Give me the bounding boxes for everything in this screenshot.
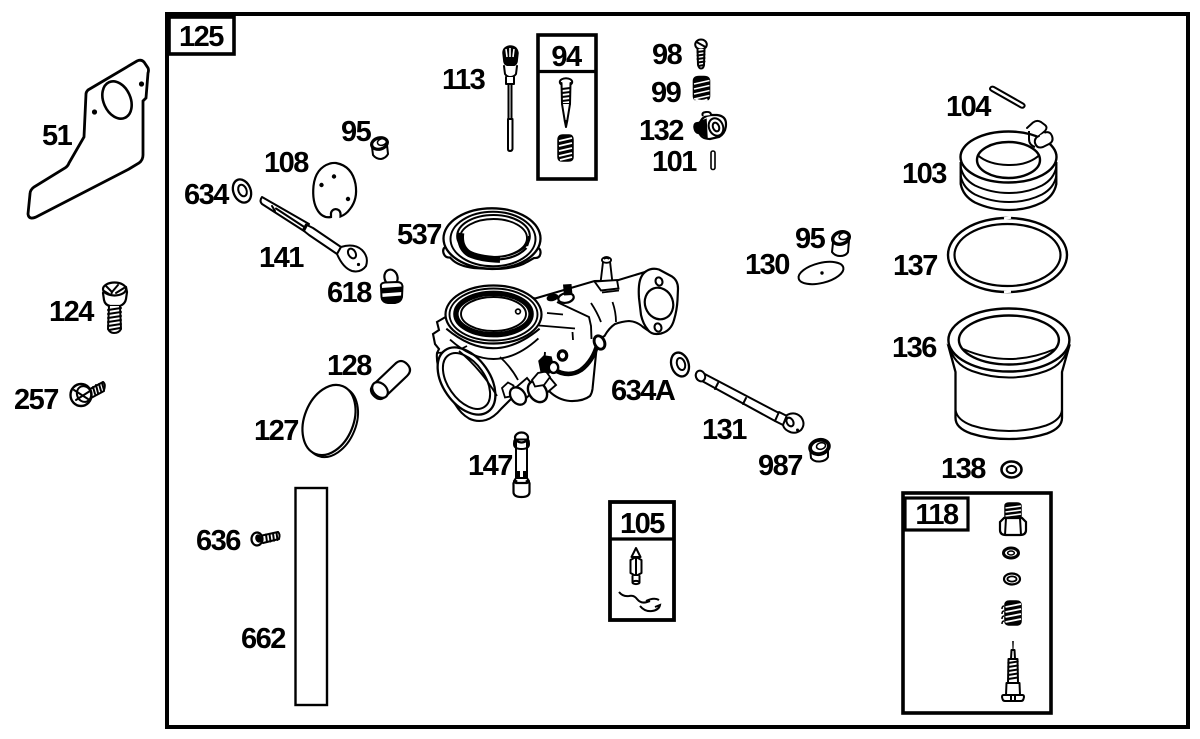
svg-text:636: 636 (196, 525, 241, 557)
svg-text:113: 113 (442, 64, 486, 96)
svg-text:141: 141 (259, 242, 304, 274)
svg-text:99: 99 (651, 77, 682, 109)
svg-text:147: 147 (468, 450, 512, 482)
svg-text:125: 125 (179, 21, 224, 53)
svg-text:51: 51 (42, 120, 73, 152)
svg-text:98: 98 (652, 39, 683, 71)
svg-text:94: 94 (551, 41, 582, 73)
svg-text:101: 101 (652, 146, 697, 178)
svg-text:634: 634 (184, 179, 229, 211)
svg-text:95: 95 (341, 116, 372, 148)
svg-text:130: 130 (745, 249, 789, 281)
svg-text:132: 132 (639, 115, 683, 147)
svg-text:105: 105 (620, 508, 665, 540)
svg-text:662: 662 (241, 623, 285, 655)
svg-text:987: 987 (758, 450, 802, 482)
svg-text:618: 618 (327, 277, 372, 309)
svg-text:257: 257 (14, 384, 58, 416)
svg-text:127: 127 (254, 415, 298, 447)
svg-text:104: 104 (946, 91, 991, 123)
svg-text:128: 128 (327, 350, 372, 382)
svg-text:137: 137 (893, 250, 937, 282)
svg-text:108: 108 (264, 147, 309, 179)
svg-text:124: 124 (49, 296, 94, 328)
svg-text:138: 138 (941, 453, 986, 485)
svg-text:136: 136 (892, 332, 937, 364)
svg-text:103: 103 (902, 158, 947, 190)
svg-text:537: 537 (397, 219, 441, 251)
svg-text:634A: 634A (611, 375, 676, 407)
svg-text:118: 118 (915, 499, 959, 531)
svg-text:95: 95 (795, 223, 826, 255)
svg-text:131: 131 (702, 414, 747, 446)
